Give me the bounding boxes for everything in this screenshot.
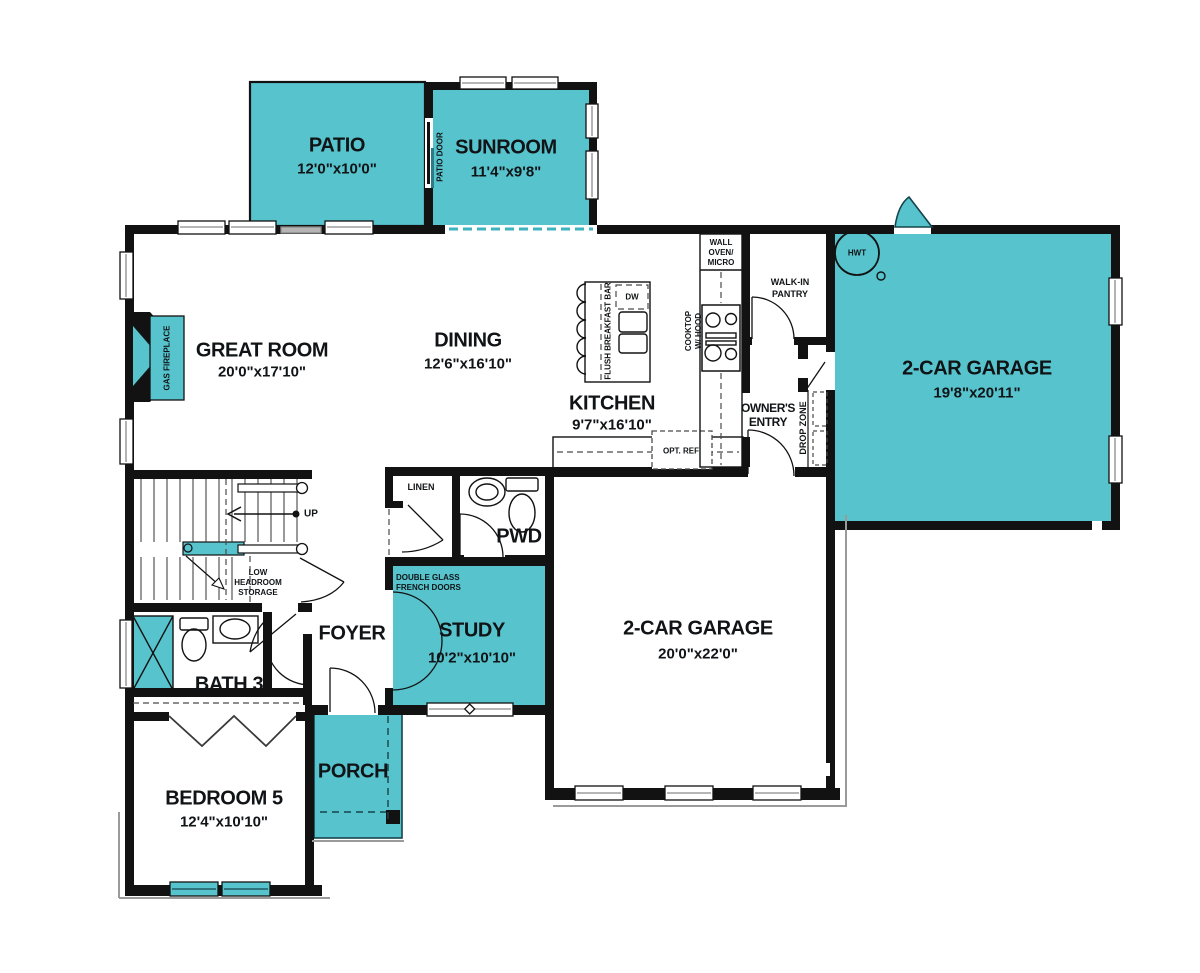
dishwasher-label: DW [625, 293, 638, 302]
garage-main-label: 2-CAR GARAGE [623, 618, 773, 641]
drop-zone [808, 390, 827, 467]
porch-label: PORCH [318, 761, 388, 784]
kitchen-dims: 9'7"x16'10" [572, 417, 652, 434]
opt-ref-label: OPT. REF [663, 447, 699, 456]
up-label: UP [304, 509, 318, 520]
pwd-label: PWD [496, 526, 541, 549]
foyer-label: FOYER [319, 623, 386, 646]
kitchen-label: KITCHEN [569, 393, 655, 416]
bedroom5-dims: 12'4"x10'10" [180, 814, 268, 831]
sunroom-dims: 11'4"x9'8" [471, 164, 542, 181]
flush-breakfast-bar-label: FLUSH BREAKFAST BAR [604, 282, 613, 379]
study-dims: 10'2"x10'10" [428, 650, 516, 667]
garage-right-dims: 19'8"x20'11" [933, 385, 1020, 402]
bath3-label: BATH 3 [195, 674, 263, 697]
floor-plan: PATIO 12'0"x10'0" SUNROOM 11'4"x9'8" PAT… [0, 0, 1200, 973]
cooktop-label: COOKTOP W/ HOOD [684, 311, 704, 351]
wall-oven-label: WALL OVEN/ MICRO [708, 238, 735, 268]
great-room-dims: 20'0"x17'10" [218, 364, 306, 381]
bedroom5-label: BEDROOM 5 [165, 788, 283, 811]
dining-dims: 12'6"x16'10" [424, 356, 512, 373]
dining-label: DINING [434, 330, 502, 353]
sunroom-label: SUNROOM [455, 137, 557, 160]
patio-door-label: PATIO DOOR [436, 132, 445, 181]
owners-entry-label: OWNER'S ENTRY [741, 401, 795, 429]
room-fills [133, 82, 1120, 838]
walk-in-pantry-label: WALK-IN PANTRY [771, 276, 810, 300]
low-headroom-label: LOW HEADROOM STORAGE [234, 568, 282, 598]
pwd-fixtures [469, 478, 538, 532]
french-doors-label: DOUBLE GLASS FRENCH DOORS [396, 573, 461, 593]
garage-main-dims: 20'0"x22'0" [658, 646, 738, 663]
kitchen-fixtures [553, 234, 743, 469]
study-label: STUDY [439, 620, 505, 643]
patio-label: PATIO [309, 135, 365, 158]
garage-right-label: 2-CAR GARAGE [902, 358, 1052, 381]
patio-dims: 12'0"x10'0" [297, 161, 377, 178]
great-room-label: GREAT ROOM [196, 340, 328, 363]
drop-zone-label: DROP ZONE [798, 401, 808, 454]
linen-label: LINEN [408, 482, 435, 492]
garage-entry-door [895, 197, 932, 227]
gas-fireplace-label: GAS FIREPLACE [163, 326, 172, 391]
hwt-label: HWT [848, 249, 866, 258]
